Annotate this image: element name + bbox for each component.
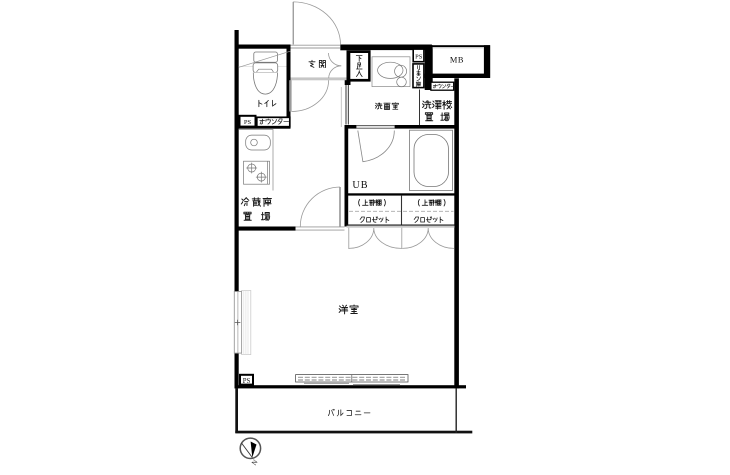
svg-text:PS: PS [244, 119, 252, 126]
svg-text:MB: MB [450, 55, 464, 64]
svg-text:UB: UB [352, 180, 368, 191]
svg-text:PS: PS [243, 378, 251, 385]
svg-text:PS: PS [415, 53, 423, 60]
